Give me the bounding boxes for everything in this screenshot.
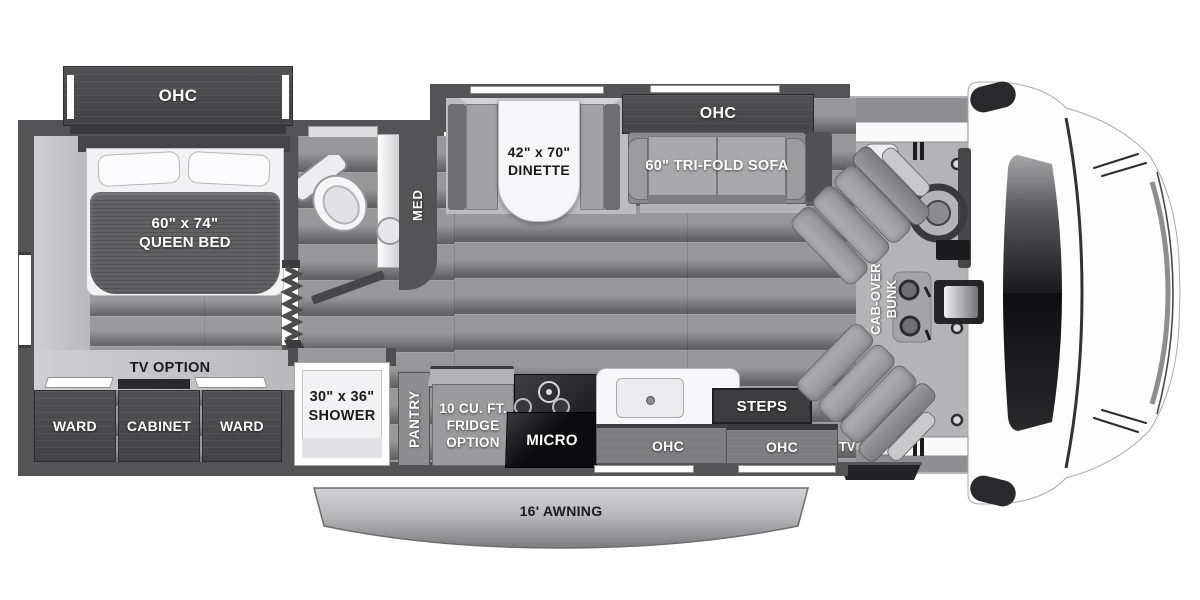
awning-label: 16' AWNING — [461, 503, 661, 519]
shower-label: 30" x 36" SHOWER — [294, 386, 390, 428]
sofa-label: 60" TRI-FOLD SOFA — [628, 158, 806, 174]
fridge-counter-flap — [428, 366, 516, 386]
kitchen-window — [594, 465, 694, 473]
dinette-size: 42" x 70" — [508, 143, 571, 161]
windshield-upper — [1003, 155, 1062, 293]
bedroom-window-left — [44, 377, 114, 388]
tv-option-label: TV OPTION — [90, 359, 250, 377]
slide-tick — [67, 75, 74, 119]
shower-threshold — [302, 438, 382, 458]
ohc-slide-lip — [70, 124, 286, 134]
bedroom-ohc-label: OHC — [159, 86, 198, 106]
bedroom-ohc-cabinet: OHC — [63, 66, 293, 126]
entry-window — [738, 465, 836, 473]
dinette-bench-seat — [580, 104, 604, 210]
entry-ohc: OHC — [726, 424, 838, 464]
bedroom-window-right — [194, 377, 268, 388]
sofa-step — [640, 204, 806, 213]
kitchen-ohc: OHC — [596, 424, 740, 464]
sofa-ohc-cabinet: OHC — [622, 94, 814, 134]
cab-over-bunk-label: CAB-OVER BUNK — [866, 244, 902, 354]
accordion-door — [280, 260, 310, 360]
toilet — [298, 155, 372, 239]
rv-floorplan: 16' AWNING — [0, 0, 1200, 600]
pillow — [187, 151, 271, 187]
windshield-lower — [1003, 293, 1062, 431]
dinette-window — [470, 86, 604, 94]
wall-bedroom-divider — [282, 134, 298, 268]
tv-label: TV — [839, 438, 865, 454]
cupholder — [901, 317, 919, 335]
bath-shelf — [308, 126, 378, 138]
ward-left: WARD — [34, 390, 116, 462]
ward-right: WARD — [202, 390, 282, 462]
cab-door-top — [850, 122, 968, 142]
cabinet: CABINET — [118, 390, 200, 462]
faucet — [646, 396, 655, 405]
cupholder — [900, 281, 918, 299]
pantry-label: PANTRY — [406, 379, 422, 459]
med-label: MED — [409, 175, 425, 235]
microwave: MICRO — [505, 412, 599, 468]
pillow — [97, 151, 181, 187]
dinette-bench-back — [604, 104, 620, 210]
queen-bed-label: 60" x 74" QUEEN BED — [110, 212, 260, 254]
dinette-bench-seat — [466, 104, 498, 210]
dinette-bench-back — [448, 104, 466, 210]
burner-center — [546, 389, 552, 395]
slide-tick — [282, 75, 289, 119]
cab-body — [968, 82, 1180, 504]
dinette-name: DINETTE — [508, 161, 570, 179]
rear-window — [19, 252, 31, 348]
sofa-window — [650, 85, 780, 93]
fridge: 10 CU. FT. FRIDGE OPTION — [432, 384, 514, 466]
bath-counter — [377, 134, 401, 268]
entry-steps: STEPS — [712, 388, 812, 424]
tv-unit — [118, 379, 190, 389]
dinette-table: 42" x 70" DINETTE — [498, 100, 580, 222]
